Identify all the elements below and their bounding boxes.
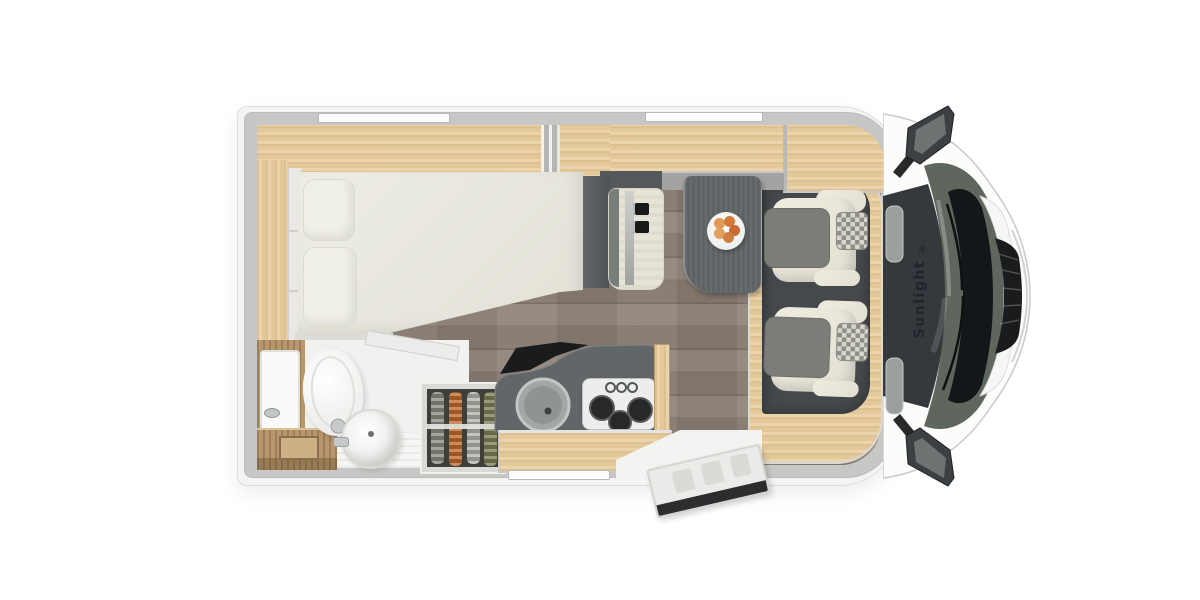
stove [582, 378, 656, 430]
seat-armrest [812, 380, 859, 398]
window-slot-kitchen [508, 470, 610, 480]
sunlight-flower-logo: ✳ [917, 243, 928, 258]
door-ridge [700, 460, 724, 486]
stove-knob [627, 382, 638, 393]
pillow [303, 247, 357, 327]
washbasin [341, 409, 401, 469]
door-ridge [671, 468, 695, 494]
cab-overhead-console [783, 125, 885, 193]
cab-side-window [886, 358, 903, 414]
bench-side-panel [583, 176, 609, 288]
seatbelt-buckle [633, 221, 649, 233]
passenger-seat [764, 190, 868, 290]
stove-knob [605, 382, 616, 393]
seat-center-panel [763, 316, 831, 378]
seat-center-panel [764, 208, 830, 268]
bathroom-door-panel [260, 350, 300, 438]
travel-bench [608, 188, 664, 290]
seatbelt-buckle [633, 203, 649, 215]
cabinet-divider [541, 125, 557, 175]
vanity-counter [257, 428, 337, 470]
pillow [303, 179, 355, 241]
stove-burner [608, 410, 632, 430]
stove-knob [616, 382, 627, 393]
cab-side-window [886, 206, 903, 262]
overhead-cabinet [257, 125, 783, 175]
window-slot-dinette [645, 112, 763, 122]
fruit [723, 232, 734, 243]
basin-drain [368, 431, 374, 437]
cab-front [883, 100, 1045, 500]
basin-faucet [333, 437, 349, 447]
driver-seat [762, 298, 869, 402]
brand-text-container: Sunlight [912, 260, 936, 354]
door-handle [264, 408, 280, 418]
garment-orange [449, 392, 462, 466]
window-slot-rear [318, 113, 450, 123]
motorhome-floorplan: ✳ Sunlight [0, 0, 1200, 600]
seat-headrest [836, 323, 869, 362]
fruit-plate [707, 212, 745, 250]
door-edge [656, 480, 768, 516]
bench-backrest [609, 189, 619, 287]
grille-slat [1003, 305, 1021, 306]
seat-armrest [814, 270, 860, 286]
rear-wardrobe-column [257, 160, 287, 352]
kitchen-end-panel [654, 344, 670, 434]
brand-text: Sunlight [912, 260, 928, 338]
vanity-sink [279, 436, 319, 460]
wardrobe-rail [426, 424, 500, 429]
seat-headrest [836, 212, 868, 250]
sink-drain [545, 408, 552, 415]
door-ridge [729, 453, 751, 478]
